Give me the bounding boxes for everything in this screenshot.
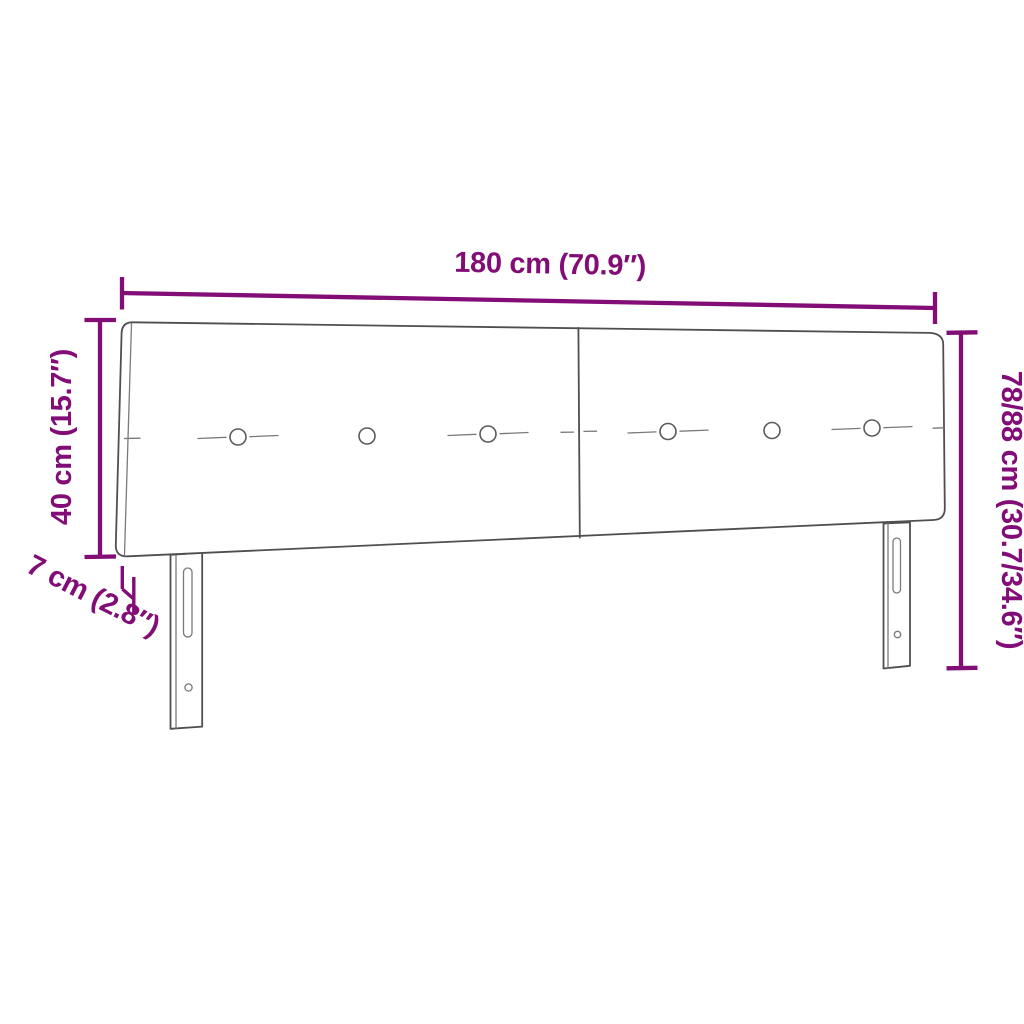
width-dimension-line	[122, 293, 935, 308]
panel-height-dimension: 40 cm (15.7″)	[46, 320, 116, 557]
right-leg-slot	[893, 538, 901, 593]
right-leg-screw-hole	[894, 631, 900, 637]
panel-height-dimension-tick-bottom	[85, 557, 117, 558]
panel-thickness-dimension: 7 cm (2.8″)	[21, 549, 164, 643]
button-5	[764, 423, 780, 439]
product-dimension-diagram: 180 cm (70.9″) 40 cm (15.7″) 78/88 cm (3…	[0, 0, 1024, 1024]
left-leg-body	[171, 553, 203, 729]
total-height-dimension-label: 78/88 cm (30.7/34.6″)	[995, 371, 1024, 649]
right-leg	[884, 522, 911, 668]
total-height-dimension: 78/88 cm (30.7/34.6″)	[947, 332, 1024, 668]
button-3	[480, 426, 496, 442]
left-leg	[171, 553, 203, 729]
headboard-drawing	[116, 322, 945, 729]
button-6	[864, 420, 880, 436]
left-leg-screw-hole	[185, 684, 192, 691]
total-height-dimension-tick-bottom	[947, 668, 978, 669]
total-height-dimension-tick-top	[947, 332, 978, 333]
button-2	[359, 428, 375, 444]
width-dimension-label: 180 cm (70.9″)	[454, 247, 646, 283]
left-leg-slot	[184, 568, 193, 637]
panel-thickness-dimension-label: 7 cm (2.8″)	[21, 549, 164, 643]
width-dimension: 180 cm (70.9″)	[122, 247, 935, 324]
button-4	[660, 424, 676, 440]
headboard-diagram-canvas: 180 cm (70.9″) 40 cm (15.7″) 78/88 cm (3…	[0, 0, 1024, 1024]
panel-height-dimension-label: 40 cm (15.7″)	[46, 349, 78, 525]
button-1	[230, 429, 246, 445]
